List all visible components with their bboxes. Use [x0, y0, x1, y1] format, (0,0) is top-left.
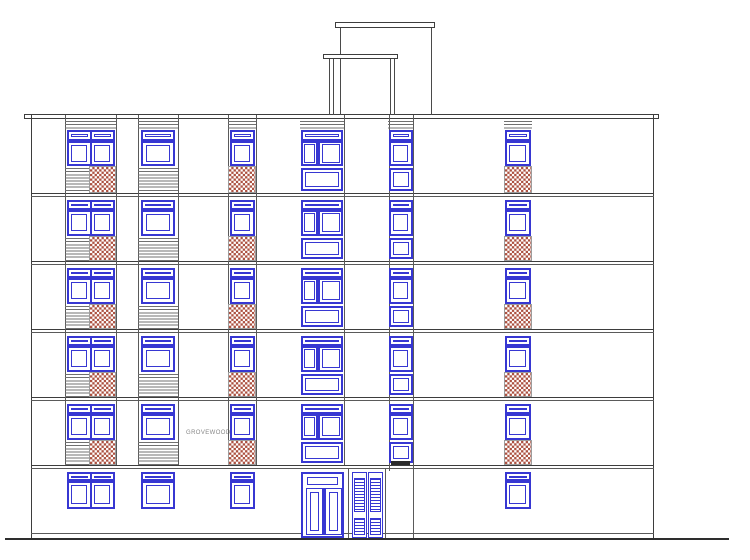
bay-6-brick-panel — [504, 304, 532, 330]
bay-5-transom — [389, 268, 413, 278]
bay-1-transom-left — [67, 336, 92, 346]
bay-1-window-right-pane — [94, 145, 110, 162]
bay-4-spandrel-panel-pane — [305, 446, 340, 460]
bay-3-window — [230, 278, 255, 304]
bay-3-transom — [230, 130, 255, 141]
bay-3-brick-panel — [228, 166, 257, 193]
floor-line — [31, 196, 654, 197]
bay-2-louvre-panel — [138, 304, 178, 330]
bay-4-window-pane-right — [322, 281, 340, 300]
louvre-door-upper-slats — [354, 478, 365, 512]
bay-1-transom-right-pane — [94, 340, 111, 342]
floor-line — [31, 397, 654, 398]
louvre-door-lower-slats — [370, 518, 381, 535]
bay-1-ground-transom-right-pane — [94, 476, 111, 478]
entrance-door-mullion — [322, 488, 325, 535]
bay-5-transom — [389, 336, 413, 346]
bay-4-window-divider — [316, 212, 320, 234]
bay-4-spandrel-panel — [301, 168, 344, 191]
bay-6-brick-panel — [504, 166, 532, 193]
penthouse-front-wall-edge — [394, 59, 395, 115]
bay-4-window-divider — [316, 416, 320, 438]
bay-1-transom-left — [67, 268, 92, 278]
roof-parapet-end — [24, 114, 25, 119]
bay-1-window-left — [67, 278, 92, 304]
bay-5-transom-pane — [393, 134, 409, 137]
facade-joint-line — [344, 115, 345, 465]
louvre-door-upper-slats — [370, 478, 381, 512]
bay-1-brick-panel — [89, 166, 116, 193]
bay-2-ground-window — [141, 481, 175, 509]
bay-1-window-right-pane — [94, 418, 110, 435]
penthouse-back-wall-edge — [340, 28, 341, 116]
bay-2-transom — [141, 130, 175, 141]
bay-1-window-left-pane — [71, 282, 87, 299]
floor-line — [31, 329, 654, 330]
bay-3-window-pane — [234, 214, 250, 231]
bay-1-transom-left — [67, 404, 92, 414]
louvre-door-panel — [368, 472, 384, 538]
bay-2-window — [141, 141, 175, 167]
bay-4-transom — [301, 130, 344, 141]
bay-4-transom-pane — [305, 408, 340, 410]
ground-line — [5, 538, 729, 541]
bay-6-brick-panel — [504, 236, 532, 262]
bay-2-window — [141, 414, 175, 440]
bay-5-window — [389, 278, 413, 304]
building-left-edge — [31, 115, 32, 538]
vent-grille — [391, 461, 410, 466]
bay-5-window — [389, 346, 413, 372]
bay-1-transom-right-pane — [94, 204, 111, 206]
bay-2-window — [141, 278, 175, 304]
penthouse-back-wall-edge — [431, 28, 432, 116]
bay-1-window-right — [90, 278, 115, 304]
bay-3-transom-pane — [234, 204, 251, 206]
bay-6-window — [505, 141, 531, 167]
bay-1-window-left-pane — [71, 214, 87, 231]
bay-3-brick-panel — [228, 236, 257, 262]
bay-2-transom-pane — [145, 340, 171, 342]
bay-6-ground-window-pane — [509, 485, 526, 504]
bay-2-transom-pane — [145, 272, 171, 274]
bay-4-window-pane-left — [304, 144, 315, 163]
bay-2-transom-pane — [145, 204, 171, 206]
bay-1-transom-left-pane — [71, 272, 88, 274]
bay-2-louvre-panel — [138, 372, 178, 398]
entrance-door-leaf-right — [325, 488, 342, 535]
bay-1-louvre-panel — [65, 236, 90, 262]
roof-parapet-line — [24, 114, 659, 115]
bay-1-window-right — [90, 346, 115, 372]
penthouse-front-cap — [323, 54, 398, 59]
bay-2-ground-transom-pane — [145, 476, 171, 478]
bay-3-lintel-band — [228, 119, 257, 130]
bay-4-window-pane-right — [322, 144, 340, 163]
bay-2-transom-pane — [145, 134, 171, 137]
bay-6-transom-pane — [509, 204, 527, 206]
bay-5-window — [389, 210, 413, 236]
bay-3-window — [230, 141, 255, 167]
bay-6-brick-panel — [504, 440, 532, 466]
bay-2-window — [141, 210, 175, 236]
floor-line — [31, 468, 654, 469]
bay-6-ground-window — [505, 481, 531, 509]
bay-1-window-right — [90, 210, 115, 236]
bay-4-window — [301, 346, 344, 372]
bay-5-spandrel-panel-pane — [393, 172, 409, 187]
bay-5-window-pane — [393, 214, 408, 231]
bay-3-ground-window-pane — [234, 485, 250, 504]
roof-parapet-end — [658, 114, 659, 119]
bay-4-spandrel-panel — [301, 442, 344, 464]
bay-4-spandrel-panel-pane — [305, 242, 340, 256]
bay-6-brick-panel — [504, 372, 532, 398]
bay-1-transom-right-pane — [94, 134, 111, 137]
bay-4-transom — [301, 336, 344, 346]
facade-joint-line — [413, 115, 414, 538]
bay-4-transom — [301, 404, 344, 414]
bay-1-transom-left — [67, 130, 92, 141]
building-right-edge — [653, 115, 654, 538]
bay-3-transom — [230, 336, 255, 346]
bay-5-spandrel-panel-pane — [393, 310, 409, 324]
bay-4-spandrel-panel — [301, 374, 344, 396]
bay-1-window-right — [90, 141, 115, 167]
bay-1-window-right-pane — [94, 214, 110, 231]
bay-1-window-right-pane — [94, 282, 110, 299]
bay-5-spandrel-panel — [389, 238, 413, 260]
bay-6-transom — [505, 130, 531, 141]
bay-1-transom-right — [90, 200, 115, 210]
bay-4-window — [301, 210, 344, 236]
bay-1-window-left — [67, 346, 92, 372]
bay-6-window-pane — [509, 282, 526, 299]
bay-4-window-divider — [316, 280, 320, 302]
bay-6-window-pane — [509, 418, 526, 435]
bay-5-window — [389, 414, 413, 440]
bay-1-transom-right — [90, 336, 115, 346]
bay-1-brick-panel — [89, 304, 116, 330]
bay-6-transom-pane — [509, 408, 527, 410]
bay-4-window-pane-right — [322, 417, 340, 436]
penthouse-front-wall-edge — [329, 59, 330, 115]
bay-6-ground-transom — [505, 472, 531, 481]
bay-1-ground-transom-left-pane — [71, 476, 88, 478]
bay-2-window-pane — [146, 145, 171, 162]
bay-1-ground-window-right-pane — [94, 485, 110, 504]
bay-2-ground-transom — [141, 472, 175, 481]
bay-1-transom-left-pane — [71, 408, 88, 410]
bay-1-transom-left — [67, 200, 92, 210]
bay-4-window-pane-left — [304, 349, 315, 368]
bay-2-ground-window-pane — [146, 485, 171, 504]
penthouse-front-wall-edge — [333, 59, 334, 115]
louvre-door-panel — [352, 472, 368, 538]
facade-joint-line — [256, 115, 257, 465]
bay-4-window-pane-right — [322, 213, 340, 232]
bay-5-spandrel-panel-pane — [393, 378, 409, 392]
bay-5-window-pane — [393, 282, 408, 299]
bay-3-brick-panel — [228, 440, 257, 466]
bay-5-transom-pane — [393, 272, 409, 274]
bay-3-transom-pane — [234, 340, 251, 342]
bay-2-louvre-panel — [138, 236, 178, 262]
bay-6-window-pane — [509, 350, 526, 367]
building-name-label: GROVEWOOD — [186, 430, 231, 436]
bay-3-brick-panel — [228, 304, 257, 330]
bay-3-transom — [230, 268, 255, 278]
bay-1-brick-panel — [89, 440, 116, 466]
louvre-door-lower-slats — [354, 518, 365, 535]
bay-5-window-pane — [393, 350, 408, 367]
bay-4-window-divider — [316, 143, 320, 165]
bay-4-spandrel-panel-pane — [305, 378, 340, 392]
bay-6-lintel-band — [504, 119, 532, 130]
bay-2-transom — [141, 268, 175, 278]
facade-joint-line — [116, 115, 117, 465]
bay-4-window — [301, 278, 344, 304]
bay-2-window-pane — [146, 214, 171, 231]
bay-1-window-left — [67, 414, 92, 440]
bay-4-transom — [301, 200, 344, 210]
bay-1-brick-panel — [89, 236, 116, 262]
bay-1-transom-right — [90, 404, 115, 414]
penthouse-back-cap — [335, 22, 435, 28]
bay-1-louvre-panel — [65, 304, 90, 330]
bay-3-window-pane — [234, 282, 250, 299]
bay-4-window-divider — [316, 348, 320, 370]
bay-3-ground-transom-pane — [234, 476, 251, 478]
entrance-door — [301, 472, 344, 539]
bay-1-louvre-panel — [65, 166, 90, 193]
bay-5-spandrel-panel — [389, 168, 413, 191]
bay-1-ground-transom-right — [90, 472, 115, 481]
bay-2-transom — [141, 404, 175, 414]
bay-2-louvre-panel — [138, 166, 178, 193]
floor-line — [31, 332, 654, 333]
bay-1-louvre-band — [65, 119, 116, 130]
bay-6-transom — [505, 336, 531, 346]
bay-1-window-left-pane — [71, 350, 87, 367]
bay-4-spandrel-panel-pane — [305, 310, 340, 324]
bay-3-transom-pane — [234, 134, 251, 137]
bay-5-transom-pane — [393, 408, 409, 410]
bay-1-transom-left-pane — [71, 134, 88, 137]
bay-1-window-right-pane — [94, 350, 110, 367]
bay-3-window — [230, 346, 255, 372]
bay-4-transom-pane — [305, 340, 340, 342]
bay-3-brick-panel — [228, 372, 257, 398]
bay-6-transom-pane — [509, 134, 527, 137]
bay-4-transom — [301, 268, 344, 278]
bay-6-window — [505, 278, 531, 304]
bay-6-window — [505, 210, 531, 236]
bay-5-spandrel-panel — [389, 374, 413, 396]
bay-1-louvre-panel — [65, 372, 90, 398]
entrance-door-transom — [307, 477, 338, 485]
floor-line — [31, 400, 654, 401]
bay-4-window-pane-right — [322, 349, 340, 368]
bay-5-window-pane — [393, 145, 408, 162]
bay-5-window-pane — [393, 418, 408, 435]
bay-1-transom-left-pane — [71, 204, 88, 206]
bay-2-louvre-panel — [138, 440, 178, 466]
bay-1-transom-right-pane — [94, 272, 111, 274]
bay-6-transom — [505, 268, 531, 278]
bay-4-transom-pane — [305, 204, 340, 206]
bay-4-window-pane-left — [304, 417, 315, 436]
bay-5-spandrel-panel-pane — [393, 446, 409, 460]
bay-1-window-left — [67, 141, 92, 167]
floor-line — [31, 264, 654, 265]
bay-4-transom-pane — [305, 272, 340, 274]
bay-1-window-right — [90, 414, 115, 440]
bay-2-window-pane — [146, 350, 171, 367]
bay-5-spandrel-panel — [389, 306, 413, 328]
bay-5-window — [389, 141, 413, 167]
bay-3-window — [230, 210, 255, 236]
bay-1-ground-window-left — [67, 481, 92, 509]
floor-line — [31, 465, 654, 466]
entrance-door-leaf-right-panel — [329, 492, 339, 532]
bay-6-ground-transom-pane — [509, 476, 527, 478]
bay-1-window-left-pane — [71, 418, 87, 435]
bay-2-louvre-band — [138, 119, 178, 130]
bay-2-window-pane — [146, 418, 171, 435]
bay-4-spandrel-panel — [301, 238, 344, 260]
bay-1-window-left-pane — [71, 145, 87, 162]
penthouse-front-wall-edge — [390, 59, 391, 115]
bay-5-spandrel-panel-pane — [393, 242, 409, 256]
bay-6-window-pane — [509, 145, 526, 162]
bay-6-window-pane — [509, 214, 526, 231]
bay-1-ground-window-right — [90, 481, 115, 509]
facade-joint-line — [385, 468, 386, 538]
bay-5-transom-pane — [393, 204, 409, 206]
bay-4-spandrel-panel — [301, 306, 344, 328]
bay-2-transom-pane — [145, 408, 171, 410]
bay-6-transom — [505, 200, 531, 210]
bay-1-transom-right — [90, 268, 115, 278]
bay-1-louvre-panel — [65, 440, 90, 466]
bay-3-ground-window — [230, 481, 255, 509]
bay-1-brick-panel — [89, 372, 116, 398]
bay-4-window — [301, 141, 344, 167]
bay-6-transom — [505, 404, 531, 414]
bay-2-transom — [141, 336, 175, 346]
bay-1-ground-window-left-pane — [71, 485, 87, 504]
bay-6-window — [505, 346, 531, 372]
bay-3-transom-pane — [234, 272, 251, 274]
bay-1-window-left — [67, 210, 92, 236]
bay-1-transom-right-pane — [94, 408, 111, 410]
bay-3-transom — [230, 404, 255, 414]
bay-3-transom-pane — [234, 408, 251, 410]
floor-line — [31, 261, 654, 262]
facade-joint-line — [178, 115, 179, 465]
bay-4-window-pane-left — [304, 213, 315, 232]
bay-3-window-pane — [234, 418, 250, 435]
bay-4-spandrel-panel-pane — [305, 172, 340, 187]
bay-6-transom-pane — [509, 340, 527, 342]
bay-4-window — [301, 414, 344, 440]
bay-3-window — [230, 414, 255, 440]
bay-2-window — [141, 346, 175, 372]
bay-2-window-pane — [146, 282, 171, 299]
bay-4-window-pane-left — [304, 281, 315, 300]
bay-3-window-pane — [234, 145, 250, 162]
bay-4-transom-pane — [305, 134, 340, 137]
entrance-door-leaf-left — [306, 488, 323, 535]
bay-5-transom — [389, 130, 413, 141]
elevation-drawing: GROVEWOOD — [0, 0, 750, 560]
bay-5-transom — [389, 404, 413, 414]
bay-3-transom — [230, 200, 255, 210]
bay-2-transom — [141, 200, 175, 210]
entrance-door-leaf-left-panel — [310, 492, 320, 532]
bay-5-transom — [389, 200, 413, 210]
bay-1-ground-transom-left — [67, 472, 92, 481]
bay-3-window-pane — [234, 350, 250, 367]
floor-line — [31, 193, 654, 194]
bay-1-transom-left-pane — [71, 340, 88, 342]
bay-1-transom-right — [90, 130, 115, 141]
facade-joint-line — [348, 468, 349, 538]
bay-6-window — [505, 414, 531, 440]
bay-5-lintel-band — [388, 119, 413, 130]
bay-5-transom-pane — [393, 340, 409, 342]
bay-6-transom-pane — [509, 272, 527, 274]
bay-3-ground-transom — [230, 472, 255, 481]
bay-4-lintel-band — [300, 119, 344, 130]
